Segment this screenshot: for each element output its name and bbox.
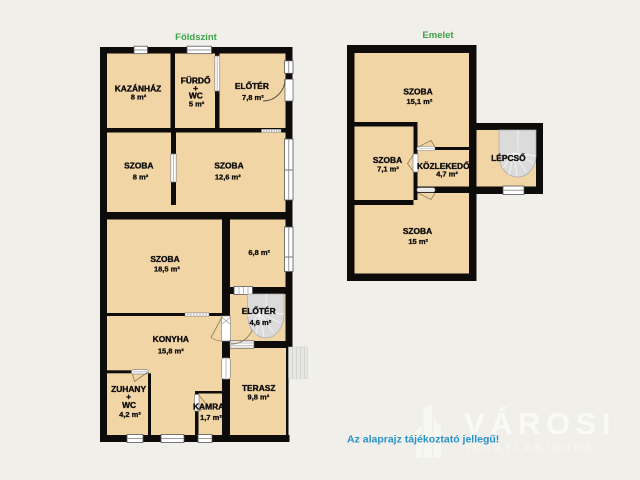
svg-text:KAMRA: KAMRA xyxy=(193,401,224,411)
svg-text:15,1 m²: 15,1 m² xyxy=(406,97,432,106)
svg-text:SZOBA: SZOBA xyxy=(403,226,432,236)
svg-text:SZOBA: SZOBA xyxy=(373,155,402,165)
svg-text:Földszint: Földszint xyxy=(175,32,218,43)
svg-text:Az alaprajz tájékoztató jelleg: Az alaprajz tájékoztató jellegű! xyxy=(347,434,499,446)
svg-text:18,5 m²: 18,5 m² xyxy=(154,265,180,274)
svg-text:LÉPCSŐ: LÉPCSŐ xyxy=(491,152,526,163)
svg-text:KONYHA: KONYHA xyxy=(153,334,189,344)
svg-text:9,8 m²: 9,8 m² xyxy=(248,392,270,401)
svg-text:ELŐTÉR: ELŐTÉR xyxy=(242,305,276,316)
svg-text:SZOBA: SZOBA xyxy=(150,254,179,264)
svg-text:7,8 m²: 7,8 m² xyxy=(242,93,264,102)
svg-text:12,6 m²: 12,6 m² xyxy=(215,173,241,182)
svg-text:4,2 m²: 4,2 m² xyxy=(119,410,141,419)
svg-text:4,7 m²: 4,7 m² xyxy=(436,170,458,179)
svg-text:6,8 m²: 6,8 m² xyxy=(248,248,270,257)
svg-text:WC: WC xyxy=(122,400,136,410)
svg-text:1,7 m²: 1,7 m² xyxy=(200,413,222,422)
svg-text:8 m²: 8 m² xyxy=(133,173,149,182)
svg-text:SZOBA: SZOBA xyxy=(124,161,153,171)
svg-text:SZOBA: SZOBA xyxy=(214,161,243,171)
svg-text:SZOBA: SZOBA xyxy=(403,87,432,97)
svg-text:8 m²: 8 m² xyxy=(131,93,147,102)
svg-text:Emelet: Emelet xyxy=(422,30,454,41)
svg-text:15,8 m²: 15,8 m² xyxy=(158,347,184,356)
svg-text:4,6 m²: 4,6 m² xyxy=(250,318,272,327)
svg-text:ELŐTÉR: ELŐTÉR xyxy=(235,80,269,91)
svg-text:15 m²: 15 m² xyxy=(408,237,428,246)
svg-text:5 m²: 5 m² xyxy=(189,100,205,109)
svg-text:7,1 m²: 7,1 m² xyxy=(377,165,399,174)
